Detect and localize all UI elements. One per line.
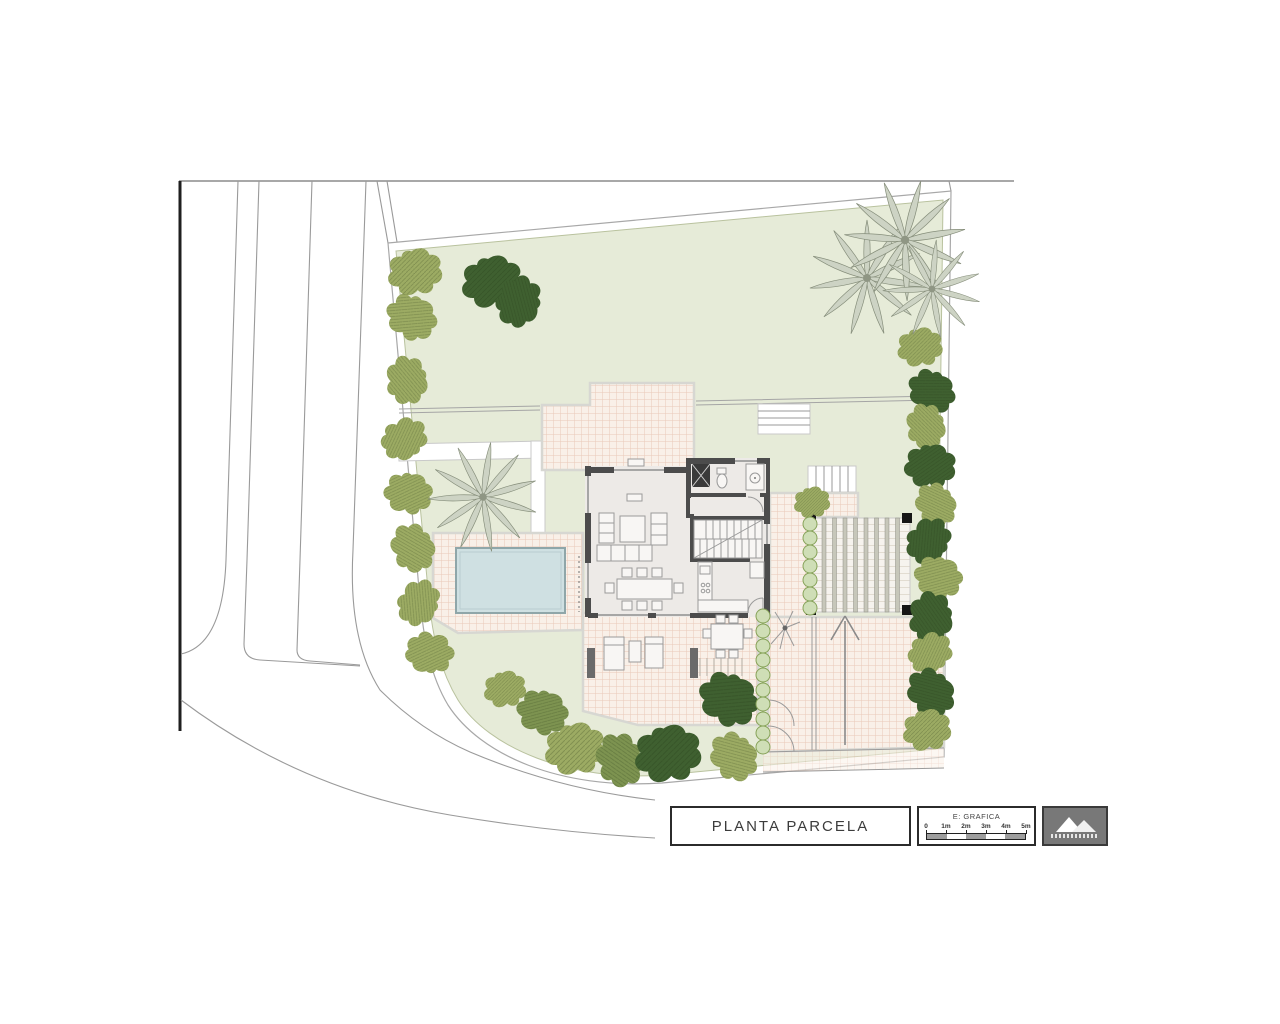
site-plan-drawing — [0, 0, 1280, 1024]
graphic-scale-box: E: GRAFICA 0 1m 2m 3m 4m 5m — [917, 806, 1036, 846]
hedge-bush — [756, 726, 770, 740]
scale-segment — [927, 834, 947, 839]
hedge-bush — [803, 573, 817, 587]
scale-tick: 1m — [941, 823, 950, 830]
scale-tick: 2m — [961, 823, 970, 830]
pergola-post — [902, 513, 912, 523]
scale-tick: 0 — [924, 823, 928, 830]
scale-segment — [947, 834, 967, 839]
drawing-title-box: PLANTA PARCELA — [670, 806, 911, 846]
hedge-bush — [756, 653, 770, 667]
scale-label: E: GRAFICA — [919, 812, 1034, 821]
hedge-bush — [756, 740, 770, 754]
site-plan-page: PLANTA PARCELA E: GRAFICA 0 1m 2m 3m 4m … — [0, 0, 1280, 1024]
hedge-bush — [756, 683, 770, 697]
scale-tick-labels: 0 1m 2m 3m 4m 5m — [926, 823, 1026, 831]
scale-tick: 3m — [981, 823, 990, 830]
planter — [587, 648, 595, 678]
scale-segment — [1005, 834, 1025, 839]
title-block: PLANTA PARCELA E: GRAFICA 0 1m 2m 3m 4m … — [670, 806, 1108, 846]
hedge-bush — [756, 668, 770, 682]
scale-segment — [986, 834, 1006, 839]
planter — [690, 648, 698, 678]
hedge-bush — [803, 517, 817, 531]
hedge-bush — [803, 601, 817, 615]
swimming-pool — [456, 548, 565, 613]
logo-caption-illegible — [1051, 834, 1099, 838]
hedge-bush — [803, 531, 817, 545]
hedge-bush — [756, 712, 770, 726]
scale-bar: 0 1m 2m 3m 4m 5m — [926, 823, 1026, 841]
scale-segment — [966, 834, 986, 839]
house — [585, 458, 770, 618]
pergola-carport — [806, 513, 912, 615]
hedge-bush — [756, 609, 770, 623]
architect-logo — [1042, 806, 1108, 846]
hedge-bush — [803, 545, 817, 559]
public-sidewalk-strip — [763, 748, 944, 772]
scale-tick: 4m — [1001, 823, 1010, 830]
twin-peaks-logo-icon — [1050, 814, 1100, 832]
staircase — [694, 520, 762, 558]
hedge-bush — [756, 697, 770, 711]
scale-tick: 5m — [1021, 823, 1030, 830]
drawing-title: PLANTA PARCELA — [712, 818, 870, 835]
hedge-bush — [756, 639, 770, 653]
scale-bar-segments — [926, 833, 1026, 840]
hedge-bush — [803, 559, 817, 573]
hedge-bush — [756, 624, 770, 638]
garden-steps-north — [758, 404, 810, 434]
hedge-bush — [803, 587, 817, 601]
